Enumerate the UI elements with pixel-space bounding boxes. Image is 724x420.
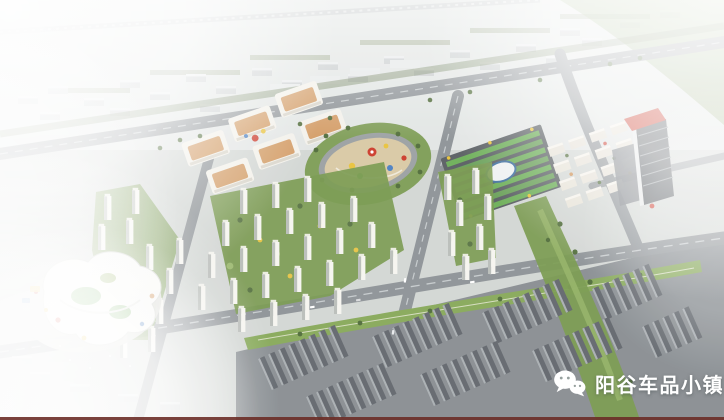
watermark-text: 阳谷车品小镇 <box>595 369 724 398</box>
watermark: 阳谷车品小镇 <box>552 368 724 398</box>
aerial-masterplan-render <box>0 0 724 420</box>
screenshot-root: 阳谷车品小镇 <box>0 0 724 420</box>
wechat-icon <box>552 368 588 398</box>
haze-overlay <box>0 0 724 420</box>
